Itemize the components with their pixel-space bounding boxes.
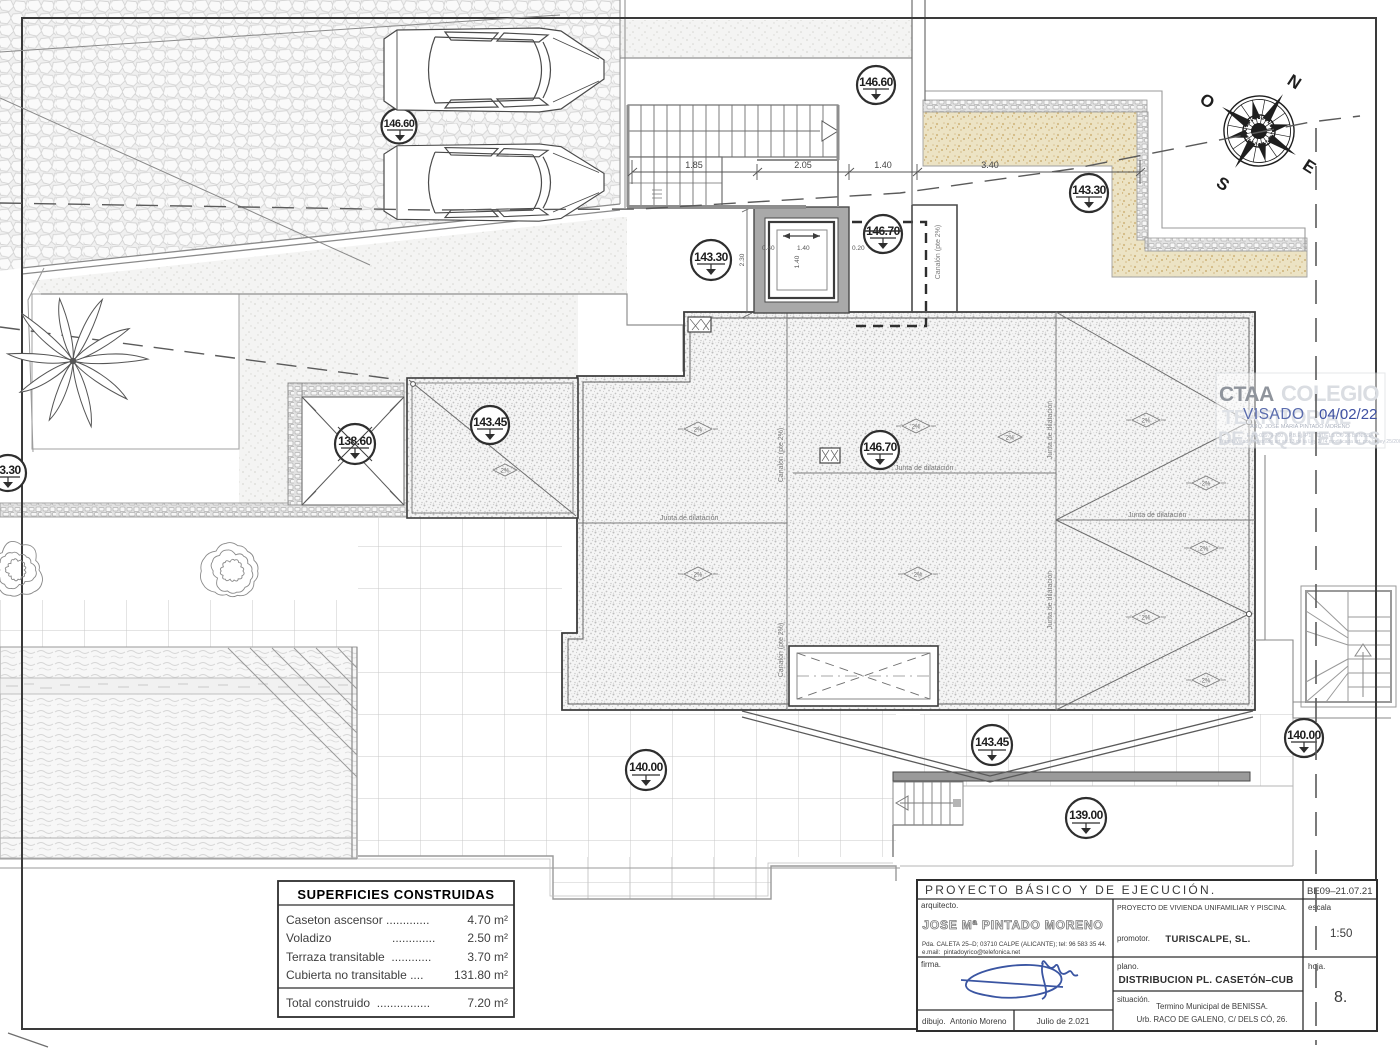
svg-text:Junta de dilatación: Junta de dilatación	[660, 515, 718, 522]
svg-text:0.40: 0.40	[762, 245, 775, 252]
svg-text:138.60: 138.60	[338, 434, 373, 448]
svg-text:Tramit./Visad. registrado art: Tramit./Visad. registrado art art.13 de …	[1219, 439, 1400, 445]
svg-text:2%: 2%	[694, 573, 703, 579]
svg-text:Junta de dilatación: Junta de dilatación	[1128, 512, 1186, 519]
svg-text:SUPERFICIES CONSTRUIDAS: SUPERFICIES CONSTRUIDAS	[297, 887, 494, 902]
svg-text:2%: 2%	[1006, 436, 1015, 442]
svg-text:2%: 2%	[694, 428, 703, 434]
svg-text:2.05: 2.05	[794, 160, 812, 170]
svg-text:Terraza transitable .........: Terraza transitable ............	[286, 950, 431, 964]
svg-text:arquitecto.: arquitecto.	[921, 901, 958, 910]
svg-text:3.30: 3.30	[0, 463, 22, 477]
svg-text:E-20-02979-700 P.B.Ej.-P1: E-20-02979-700 P.B.Ej.-P1 C/DELS CÓ 26 B…	[1247, 432, 1374, 439]
svg-text:situación.: situación.	[1117, 995, 1150, 1004]
svg-text:.............: .............	[392, 931, 435, 945]
svg-text:2%: 2%	[1202, 679, 1211, 685]
svg-text:plano.: plano.	[1117, 962, 1139, 971]
svg-text:7.20 m²: 7.20 m²	[467, 996, 508, 1010]
svg-text:2%: 2%	[914, 573, 923, 579]
svg-text:Canalón (pte 2%): Canalón (pte 2%)	[778, 623, 785, 677]
svg-text:BE09–21.07.21: BE09–21.07.21	[1307, 886, 1373, 897]
svg-text:PROYECTO BÁSICO Y DE EJECUCIÓN: PROYECTO BÁSICO Y DE EJECUCIÓN.	[925, 882, 1216, 897]
svg-text:1.85: 1.85	[685, 160, 703, 170]
svg-text:Junta de dilatación: Junta de dilatación	[1047, 401, 1054, 459]
svg-text:2%: 2%	[1142, 616, 1151, 622]
svg-text:3.40: 3.40	[981, 160, 999, 170]
svg-text:VISADO: VISADO	[1243, 406, 1305, 423]
svg-text:COLEGIO: COLEGIO	[1281, 381, 1379, 406]
svg-text:ARQ. JOSE MARIA PINTADO MORENO: ARQ. JOSE MARIA PINTADO MORENO	[1250, 424, 1351, 430]
svg-text:CTAA: CTAA	[1219, 383, 1274, 406]
svg-text:3.70 m²: 3.70 m²	[467, 950, 508, 964]
svg-text:1.40: 1.40	[794, 255, 801, 268]
svg-text:1.40: 1.40	[874, 160, 892, 170]
svg-text:8.: 8.	[1334, 989, 1347, 1006]
svg-text:escala: escala	[1308, 903, 1332, 912]
svg-text:Cubierta no transitable ....: Cubierta no transitable ....	[286, 968, 423, 982]
svg-text:143.30: 143.30	[694, 250, 729, 264]
svg-text:2%: 2%	[1200, 547, 1209, 553]
svg-text:1.40: 1.40	[797, 245, 810, 252]
svg-text:0.20: 0.20	[852, 245, 865, 252]
svg-text:1:50: 1:50	[1330, 928, 1352, 940]
svg-text:Termino Municipal de BENISSA.: Termino Municipal de BENISSA.	[1156, 1002, 1268, 1011]
svg-text:146.70: 146.70	[863, 440, 898, 454]
svg-text:131.80 m²: 131.80 m²	[454, 968, 508, 982]
svg-text:Pda. CALETA 25–D; 03710 CALPE: Pda. CALETA 25–D; 03710 CALPE (ALICANTE)…	[922, 941, 1107, 948]
svg-text:2.30: 2.30	[739, 253, 746, 266]
svg-text:firma.: firma.	[921, 960, 941, 969]
svg-text:4.70 m²: 4.70 m²	[467, 913, 508, 927]
svg-text:TURISCALPE, SL.: TURISCALPE, SL.	[1165, 934, 1250, 945]
svg-text:e.mail: pintadoyrico@telefoni: e.mail: pintadoyrico@telefonica.net	[922, 949, 1020, 956]
svg-text:139.00: 139.00	[1069, 808, 1104, 822]
svg-text:2%: 2%	[1142, 419, 1151, 425]
svg-text:Junta de dilatación: Junta de dilatación	[895, 465, 953, 472]
svg-text:JOSE Mª PINTADO MORENO: JOSE Mª PINTADO MORENO	[922, 918, 1103, 932]
svg-text:Julio de 2.021: Julio de 2.021	[1037, 1016, 1090, 1026]
svg-text:Canalón (pte 2%): Canalón (pte 2%)	[935, 225, 942, 279]
svg-text:Total construido ............: Total construido ................	[286, 996, 430, 1010]
svg-text:dibujo. Antonio Moreno: dibujo. Antonio Moreno	[922, 1017, 1007, 1026]
svg-text:Junta de dilatación: Junta de dilatación	[1047, 571, 1054, 629]
svg-text:Voladizo: Voladizo	[286, 931, 332, 945]
svg-text:143.45: 143.45	[473, 415, 508, 429]
svg-text:2.50 m²: 2.50 m²	[467, 931, 508, 945]
svg-text:143.30: 143.30	[1072, 183, 1107, 197]
svg-text:2%: 2%	[501, 469, 510, 475]
svg-text:2%: 2%	[912, 425, 921, 431]
svg-text:DISTRIBUCION PL. CASETÓN–CUB: DISTRIBUCION PL. CASETÓN–CUB	[1118, 973, 1293, 986]
svg-text:Caseton ascensor .............: Caseton ascensor .............	[286, 913, 429, 927]
svg-text:146.60: 146.60	[859, 75, 894, 89]
svg-text:146.60: 146.60	[384, 118, 415, 130]
svg-text:2%: 2%	[1202, 482, 1211, 488]
svg-text:140.00: 140.00	[629, 760, 664, 774]
svg-text:Urb. RACO DE GALENO, C/ DELS C: Urb. RACO DE GALENO, C/ DELS CÓ, 26.	[1137, 1015, 1288, 1024]
svg-text:143.45: 143.45	[975, 735, 1010, 749]
svg-text:PROYECTO DE VIVIENDA UNIFAMILI: PROYECTO DE VIVIENDA UNIFAMILIAR Y PISCI…	[1117, 905, 1287, 912]
svg-text:04/02/22: 04/02/22	[1319, 406, 1377, 423]
svg-text:promotor.: promotor.	[1117, 934, 1150, 943]
svg-text:Canalón (pte 2%): Canalón (pte 2%)	[778, 428, 785, 482]
